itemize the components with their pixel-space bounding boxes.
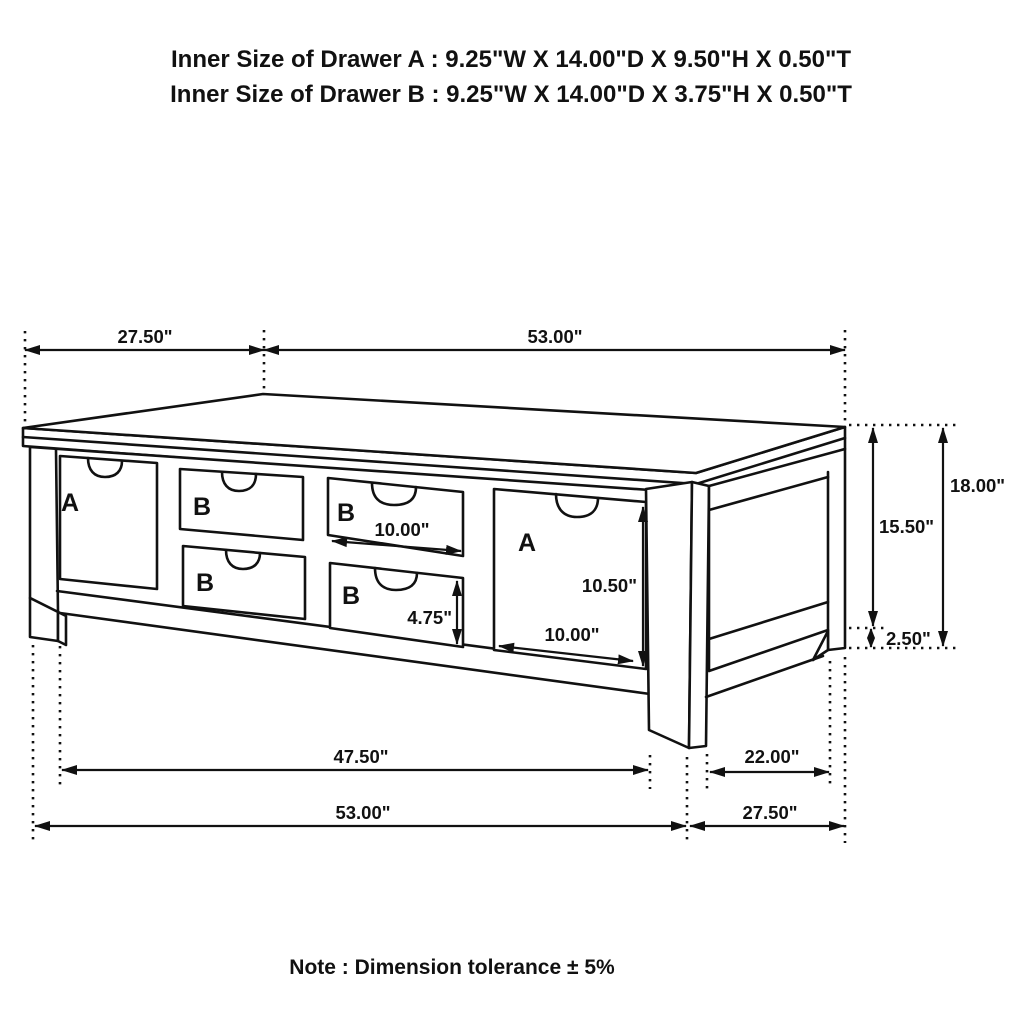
drawer-label-b-col1-top: B (193, 493, 211, 521)
label-top-depth: 27.50" (117, 326, 172, 347)
tolerance-note: Note : Dimension tolerance ± 5% (289, 956, 615, 979)
label-side-leg-span: 22.00" (744, 746, 799, 767)
label-total-height: 18.00" (950, 475, 1005, 496)
inner-size-drawer-a-text: Inner Size of Drawer A : 9.25"W X 14.00"… (171, 46, 851, 73)
label-foot-height: 2.50" (886, 628, 931, 649)
label-front-leg-span: 47.50" (333, 746, 388, 767)
label-drawer-b-width: 10.00" (374, 519, 429, 540)
label-drawer-a-height: 10.50" (582, 575, 637, 596)
coffee-table-dimension-diagram: Inner Size of Drawer A : 9.25"W X 14.00"… (0, 0, 1024, 1024)
drawer-label-b-col2-top: B (337, 499, 355, 527)
front-right-leg-side (689, 482, 709, 748)
drawer-label-b-col2-bottom: B (342, 582, 360, 610)
label-drawer-b-height: 4.75" (407, 607, 452, 628)
label-bottom-depth: 27.50" (742, 802, 797, 823)
label-top-width: 53.00" (527, 326, 582, 347)
front-right-leg (646, 482, 692, 748)
inner-size-drawer-b-text: Inner Size of Drawer B : 9.25"W X 14.00"… (170, 81, 852, 108)
label-apron-height: 15.50" (879, 516, 934, 537)
label-bottom-width: 53.00" (335, 802, 390, 823)
dimension-diagram-page: Inner Size of Drawer A : 9.25"W X 14.00"… (0, 0, 1024, 1024)
front-left-leg-side (58, 612, 66, 645)
drawer-label-a-right: A (518, 529, 536, 557)
title-block: Inner Size of Drawer A : 9.25"W X 14.00"… (170, 46, 852, 108)
table-drawing (23, 394, 845, 748)
label-drawer-a-width: 10.00" (544, 624, 599, 645)
drawer-label-b-col1-bottom: B (196, 569, 214, 597)
drawer-label-a-left: A (61, 489, 79, 517)
